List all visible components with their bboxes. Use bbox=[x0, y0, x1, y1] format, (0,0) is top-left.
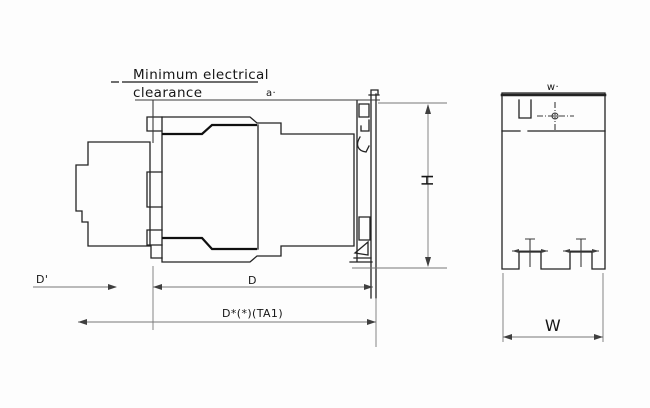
d-arrow-left bbox=[153, 284, 162, 290]
dimension-drawing-page: Minimum electrical clearance a· H D' D D… bbox=[0, 0, 650, 408]
w-arrow-left bbox=[503, 334, 512, 340]
d-prime-label: D' bbox=[36, 273, 48, 286]
note-line1: Minimum electrical bbox=[133, 67, 269, 83]
dimension-annotations: Minimum electrical clearance a· H D' D D… bbox=[33, 67, 603, 342]
d-total-arrow-right bbox=[367, 319, 376, 325]
d-total-arrow-left bbox=[78, 319, 87, 325]
side-view-core-bottom-line bbox=[163, 238, 256, 249]
w-top-label: w· bbox=[547, 82, 559, 93]
side-view-terminal-tabs bbox=[147, 117, 162, 258]
w-label: W bbox=[545, 316, 561, 335]
side-view-knob-outline bbox=[76, 142, 150, 246]
front-view bbox=[502, 93, 605, 269]
front-view-top-center-mark bbox=[537, 102, 574, 132]
side-view-mounting-plate bbox=[369, 90, 379, 298]
w-arrow-right bbox=[594, 334, 603, 340]
front-view-body-outline bbox=[502, 93, 605, 269]
note-line2: clearance bbox=[133, 85, 202, 101]
front-view-slot-center-marks bbox=[512, 239, 599, 267]
d-label: D bbox=[248, 274, 257, 287]
center-mark-lines bbox=[537, 102, 574, 132]
clearance-label: a· bbox=[266, 88, 276, 99]
side-view-top-hook-detail bbox=[358, 104, 369, 152]
slot-mark-tick bbox=[512, 249, 519, 253]
side-view-core-top-line bbox=[163, 125, 256, 134]
slot-mark-tick bbox=[541, 249, 548, 253]
slot-centerlines bbox=[525, 239, 586, 267]
d-prime-arrow bbox=[108, 284, 117, 290]
h-label: H bbox=[418, 174, 437, 186]
h-arrow-bottom bbox=[425, 257, 431, 267]
technical-drawing: Minimum electrical clearance a· H D' D D… bbox=[0, 0, 650, 408]
d-total-label: D*(*)(TA1) bbox=[222, 307, 283, 320]
front-view-u-cutout bbox=[519, 100, 531, 118]
slot-mark-tick bbox=[563, 249, 570, 253]
slot-mark-tick bbox=[592, 249, 599, 253]
h-arrow-top bbox=[425, 104, 431, 114]
